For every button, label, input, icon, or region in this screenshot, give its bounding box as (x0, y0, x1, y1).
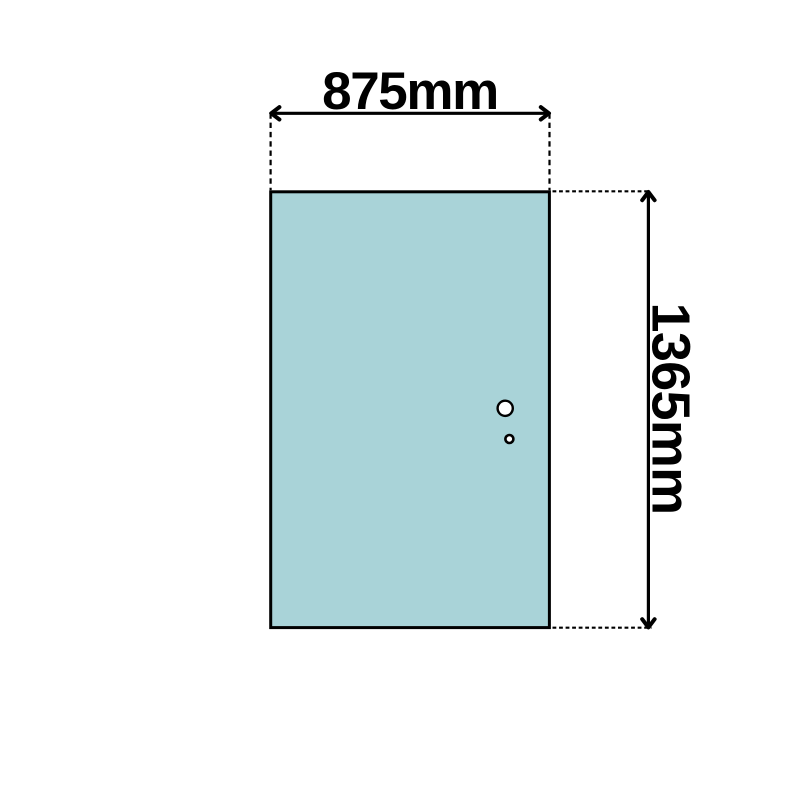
svg-text:1365mm: 1365mm (641, 303, 701, 515)
svg-text:875mm: 875mm (322, 62, 498, 121)
